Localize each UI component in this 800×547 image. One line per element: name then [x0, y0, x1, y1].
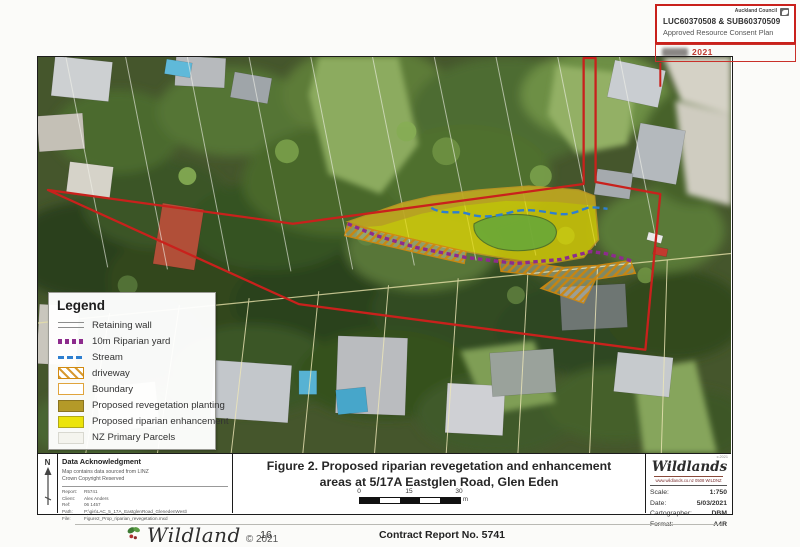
footer-page-number: 16	[248, 529, 284, 541]
scale-tick-30: 30	[455, 488, 462, 495]
wildlands-corner-note: c.2021	[717, 455, 728, 459]
data-ack-line2: Crown Copyright Reserved	[62, 476, 124, 482]
figure-title-block: Figure 2. Proposed riparian revegetation…	[233, 454, 646, 513]
enhancement-symbol	[58, 416, 84, 428]
data-ack-line1: Map contains data sourced from LINZ	[62, 469, 149, 475]
data-ack-rows: Report:R5741 Client:Alex Anders Ref:06 1…	[62, 486, 228, 522]
north-arrow-icon	[42, 467, 54, 507]
council-emblem-icon	[780, 8, 789, 16]
footer-report-number: Contract Report No. 5741	[355, 529, 505, 541]
scale-tick-0: 0	[357, 488, 361, 495]
legend-item-driveway: driveway	[57, 365, 209, 381]
council-logo: Auckland Council	[663, 8, 789, 16]
date-stamp-smudge	[662, 48, 688, 57]
ack-row-client: Client:Alex Anders	[62, 496, 228, 503]
date-stamp-year: 2021	[692, 47, 713, 57]
data-ack-title: Data Acknowledgment	[62, 457, 228, 466]
ack-row-report: Report:R5741	[62, 489, 228, 496]
pool-bottom-1	[299, 371, 317, 395]
parcels-symbol	[58, 432, 84, 444]
stream-symbol	[58, 356, 84, 359]
footer-leaf-icon	[126, 524, 142, 542]
scale-bar-segments	[359, 497, 461, 504]
legend: Legend Retaining wall 10m Riparian yard …	[48, 292, 216, 450]
row-scale: Scale:1:750	[650, 488, 727, 499]
north-arrow-cell: N	[38, 454, 58, 513]
legend-item-enhancement: Proposed riparian enhancement	[57, 414, 209, 430]
scanned-report-page: N Data Acknowledgment Map contains data …	[0, 0, 800, 547]
scale-bar-unit: m	[463, 497, 468, 503]
wildlands-block: c.2021 Wildlands www.wildlands.co.nz 050…	[646, 454, 731, 513]
wildlands-tagline: www.wildlands.co.nz 0508 WILDNZ	[654, 476, 723, 483]
retaining-wall-symbol	[58, 322, 84, 328]
revegetation-symbol	[58, 400, 84, 412]
consent-reference: LUC60370508 & SUB60370509	[663, 17, 789, 26]
ack-row-ref: Ref:06 1457	[62, 502, 228, 509]
legend-item-riparian-yard: 10m Riparian yard	[57, 333, 209, 349]
consent-plan-label: Approved Resource Consent Plan	[663, 28, 789, 37]
driveway-symbol	[58, 367, 84, 379]
footer-brand-name: Wildland	[147, 523, 241, 547]
legend-item-boundary: Boundary	[57, 381, 209, 397]
scale-bar-labels: 0 15 30	[359, 488, 477, 496]
scale-bar: 0 15 30 m	[359, 488, 477, 508]
legend-title: Legend	[57, 298, 209, 313]
boundary-symbol	[58, 383, 84, 395]
wildlands-logo: Wildlands	[650, 459, 727, 475]
data-acknowledgment: Data Acknowledgment Map contains data so…	[58, 454, 233, 513]
figure-title-line1: Figure 2. Proposed riparian revegetation…	[233, 459, 645, 475]
north-label: N	[38, 458, 57, 467]
pool-bottom-2	[336, 387, 368, 415]
scale-tick-15: 15	[405, 488, 412, 495]
ack-row-path: Path:P:\gis\LAC_5_17A_EastglenRoad_Glene…	[62, 509, 228, 516]
riparian-yard-symbol	[58, 339, 84, 344]
wildlands-brand: Wildlands	[652, 459, 727, 475]
legend-item-parcels: NZ Primary Parcels	[57, 430, 209, 446]
figure-info-strip: N Data Acknowledgment Map contains data …	[38, 454, 731, 513]
legend-item-revegetation: Proposed revegetation planting	[57, 397, 209, 413]
legend-item-stream: Stream	[57, 349, 209, 365]
council-name: Auckland Council	[735, 9, 777, 14]
date-stamp-box: 2021	[655, 44, 796, 62]
data-ack-source: Map contains data sourced from LINZ Crow…	[62, 469, 228, 483]
ack-row-file: File:Figure2_Prop_riparian_revegetation.…	[62, 516, 228, 523]
consent-stamp-box: Auckland Council LUC60370508 & SUB603705…	[655, 4, 796, 44]
row-date: Date:5/03/2021	[650, 499, 727, 510]
legend-item-retaining-wall: Retaining wall	[57, 317, 209, 333]
row-cartographer: Cartographer:DBM	[650, 509, 727, 520]
